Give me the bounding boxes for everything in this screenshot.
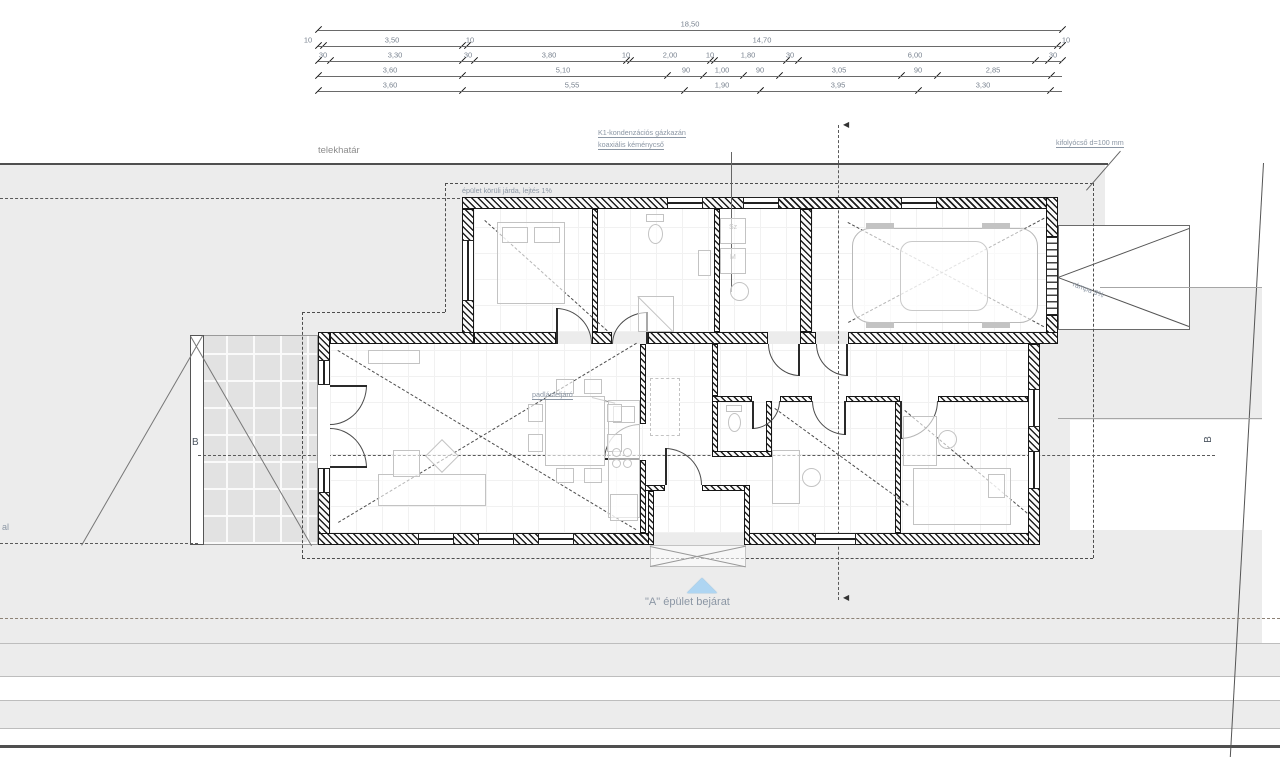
dimension-label: 1,00 bbox=[715, 67, 730, 75]
furniture-burner bbox=[623, 459, 632, 468]
dimension-label: 2,00 bbox=[663, 52, 678, 60]
terrace-deck bbox=[198, 335, 318, 545]
roof-outline bbox=[445, 183, 446, 312]
door-leaf bbox=[798, 344, 800, 376]
wall bbox=[938, 396, 1028, 402]
furniture-desk bbox=[772, 450, 800, 504]
wall bbox=[592, 209, 598, 332]
furniture-sideboard bbox=[368, 350, 420, 364]
furniture-chair bbox=[528, 434, 543, 452]
window bbox=[667, 197, 703, 209]
furniture-desk bbox=[903, 416, 937, 466]
dimension-label: 90 bbox=[914, 67, 922, 75]
dimension-line bbox=[318, 61, 1062, 62]
road-line bbox=[0, 676, 1280, 677]
furniture-chair-round bbox=[938, 430, 957, 449]
property-boundary-line bbox=[0, 163, 1108, 165]
wall bbox=[592, 332, 612, 344]
dimension-label: 3,80 bbox=[542, 52, 557, 60]
wall bbox=[474, 332, 556, 344]
furniture-washer bbox=[720, 218, 746, 244]
dimension-label: 5,10 bbox=[556, 67, 571, 75]
wall bbox=[800, 209, 812, 332]
wall bbox=[1028, 344, 1040, 545]
drain-note: kifolyócső d=100 mm bbox=[1056, 139, 1124, 148]
furniture-toilet-tank bbox=[726, 405, 742, 412]
roof-outline bbox=[302, 312, 445, 313]
window bbox=[901, 197, 937, 209]
door-leaf bbox=[556, 308, 558, 344]
dimension-label: 90 bbox=[756, 67, 764, 75]
window bbox=[1028, 389, 1040, 427]
dimension-label: 90 bbox=[682, 67, 690, 75]
window bbox=[538, 533, 574, 545]
section-b-marker-right: B bbox=[1203, 436, 1214, 443]
dimension-label: 6,00 bbox=[908, 52, 923, 60]
section-a-arrow-top: ◀ bbox=[843, 121, 849, 129]
entrance-label: "A" épület bejárat bbox=[645, 597, 730, 608]
furniture-chair bbox=[584, 468, 602, 483]
dimension-line bbox=[318, 91, 1062, 92]
road-band bbox=[0, 643, 1280, 676]
furniture-fridge bbox=[610, 494, 638, 521]
dimension-label: 10 bbox=[304, 37, 312, 45]
wall bbox=[1046, 197, 1058, 237]
dimension-line bbox=[318, 30, 1062, 31]
wall bbox=[648, 332, 768, 344]
furniture-car-wheel bbox=[982, 322, 1010, 328]
window bbox=[743, 197, 779, 209]
furniture-chair bbox=[607, 404, 622, 422]
furniture-pillow bbox=[502, 227, 528, 243]
wall bbox=[712, 344, 718, 396]
furniture-chair bbox=[556, 468, 574, 483]
furniture-dining-table bbox=[545, 396, 605, 466]
furniture-chair-round bbox=[802, 468, 821, 487]
dimension-label: 3,60 bbox=[383, 82, 398, 90]
dimension-label: 14,70 bbox=[753, 37, 772, 45]
window bbox=[418, 533, 454, 545]
sidewalk-note: épület körüli járda, lejtés 1% bbox=[462, 187, 552, 194]
wall bbox=[800, 332, 816, 344]
dimension-label: 3,30 bbox=[976, 82, 991, 90]
wall bbox=[640, 344, 646, 424]
attic-access-label: padlásfeljáró bbox=[532, 391, 573, 400]
wall bbox=[744, 533, 1040, 545]
wall bbox=[744, 485, 750, 545]
dimension-label: 3,05 bbox=[832, 67, 847, 75]
pavement-line bbox=[1058, 418, 1262, 419]
door-leaf bbox=[330, 385, 367, 387]
dimension-label: 3,30 bbox=[388, 52, 403, 60]
dimension-label: 1,80 bbox=[741, 52, 756, 60]
garage-door bbox=[1046, 237, 1058, 315]
wall bbox=[846, 396, 900, 402]
section-a-arrow-bottom: ◀ bbox=[843, 594, 849, 602]
boiler-note-line1: K1-kondenzációs gázkazán bbox=[598, 129, 686, 138]
road-line bbox=[0, 728, 1280, 729]
window bbox=[318, 468, 330, 493]
furniture-toilet-bowl bbox=[728, 413, 741, 432]
door-leaf bbox=[846, 344, 848, 376]
window bbox=[478, 533, 514, 545]
furniture-car-wheel bbox=[982, 223, 1010, 229]
furniture-car-wheel bbox=[866, 322, 894, 328]
ramp-area bbox=[1058, 225, 1190, 330]
furniture-pillow bbox=[534, 227, 560, 243]
furniture-toilet-tank bbox=[646, 214, 664, 222]
furniture-pillow bbox=[988, 474, 1005, 498]
left-edge-text-fragment: al bbox=[2, 523, 9, 532]
entrance-triangle-icon bbox=[687, 578, 717, 593]
door-leaf bbox=[330, 466, 367, 468]
section-b-marker-left: B bbox=[192, 437, 199, 448]
wall bbox=[648, 491, 654, 545]
floor-plan-canvas: -0,28-0,30-0,28-0,02+0,00+0,00+0,00-0,28… bbox=[0, 0, 1280, 757]
washer-label: Sz bbox=[729, 224, 737, 231]
furniture-toilet-bowl bbox=[648, 224, 663, 244]
dimension-label: 3,50 bbox=[385, 37, 400, 45]
window bbox=[318, 360, 330, 385]
dimension-label: 5,55 bbox=[565, 82, 580, 90]
window bbox=[462, 240, 474, 301]
road-band bbox=[0, 700, 1280, 728]
furniture-car-wheel bbox=[866, 223, 894, 229]
furniture-dryer bbox=[720, 248, 746, 274]
dimension-label: 3,60 bbox=[383, 67, 398, 75]
wall bbox=[848, 332, 1058, 344]
property-boundary-label: telekhatár bbox=[318, 146, 360, 156]
furniture-car-cabin bbox=[900, 241, 988, 311]
roof-outline bbox=[445, 183, 1093, 184]
boiler-note-line2: koaxiális kéménycső bbox=[598, 141, 664, 150]
building-bottom-extension bbox=[0, 543, 198, 544]
furniture-burner bbox=[612, 459, 621, 468]
dimension-label: 2,85 bbox=[986, 67, 1001, 75]
wall bbox=[702, 485, 748, 491]
wall bbox=[330, 332, 474, 344]
window bbox=[815, 533, 856, 545]
dimension-label: 1,90 bbox=[715, 82, 730, 90]
furniture-sofa bbox=[378, 474, 486, 506]
wall bbox=[712, 396, 752, 402]
dimension-line bbox=[318, 76, 1062, 77]
road-band-white bbox=[0, 676, 1280, 700]
dimension-label: 3,95 bbox=[831, 82, 846, 90]
door-leaf bbox=[752, 401, 754, 429]
dimension-line bbox=[318, 46, 1062, 47]
roof-outline bbox=[302, 312, 303, 558]
wall bbox=[712, 401, 718, 457]
roof-outline bbox=[1093, 183, 1094, 558]
furniture-burner bbox=[623, 448, 632, 457]
furniture-armchair bbox=[393, 450, 420, 477]
wall bbox=[712, 451, 772, 457]
building-top-extension bbox=[0, 198, 460, 199]
door-leaf bbox=[844, 401, 846, 435]
furniture-chair bbox=[528, 404, 543, 422]
dimension-label: 18,50 bbox=[681, 21, 700, 29]
wall bbox=[640, 460, 646, 533]
window bbox=[1028, 451, 1040, 489]
dryer-label: M bbox=[730, 254, 736, 261]
furniture-wardrobe bbox=[650, 378, 680, 436]
road-centerline bbox=[0, 618, 1280, 619]
door-leaf bbox=[665, 448, 667, 485]
furniture-burner bbox=[612, 448, 621, 457]
pavement-line bbox=[1100, 287, 1262, 288]
furniture-washbasin bbox=[698, 250, 711, 276]
door-leaf bbox=[900, 401, 902, 439]
road-edge-line bbox=[0, 745, 1280, 748]
furniture-chair bbox=[584, 379, 602, 394]
terrace-door-opening bbox=[318, 385, 330, 468]
furniture-boiler bbox=[730, 282, 749, 301]
road-band-white bbox=[0, 728, 1280, 757]
wall bbox=[780, 396, 812, 402]
